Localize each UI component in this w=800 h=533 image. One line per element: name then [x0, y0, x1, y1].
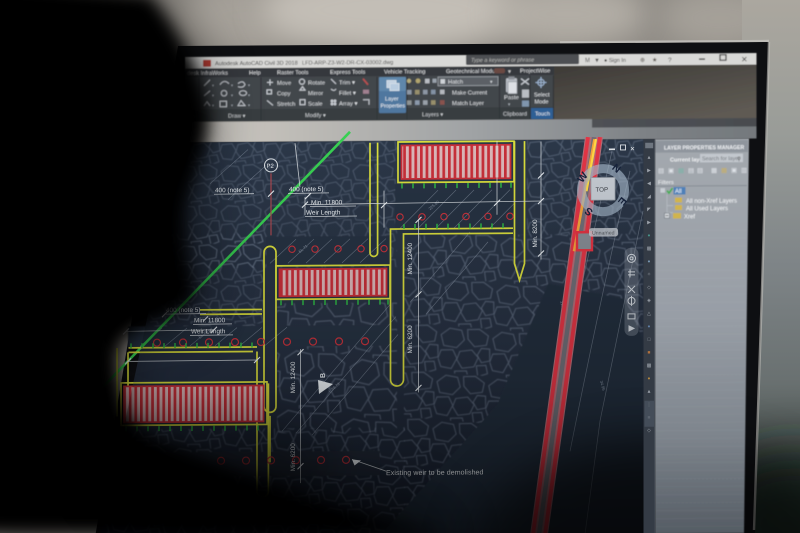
svg-text:Stretch: Stretch	[277, 102, 295, 108]
svg-text:All: All	[675, 189, 682, 195]
svg-text:LAYER PROPERTIES MANAGER: LAYER PROPERTIES MANAGER	[664, 145, 744, 152]
svg-text:All non-Xref Layers: All non-Xref Layers	[686, 199, 737, 205]
svg-text:Current laye: Current laye	[670, 157, 703, 163]
svg-text:▲: ▲	[647, 390, 652, 395]
svg-text:★: ★	[652, 57, 657, 64]
svg-text:▧: ▧	[658, 168, 664, 175]
svg-text:▾: ▾	[231, 103, 233, 108]
svg-text:◇: ◇	[647, 428, 651, 434]
svg-text:Fillet ▾: Fillet ▾	[339, 91, 356, 97]
svg-text:✧: ✧	[647, 272, 651, 278]
svg-text:▨: ▨	[697, 167, 703, 174]
svg-text:Scale: Scale	[308, 102, 323, 108]
svg-text:?: ?	[668, 57, 672, 64]
svg-text:Rotate: Rotate	[308, 81, 325, 87]
svg-text:Properties: Properties	[381, 103, 406, 109]
svg-text:□: □	[648, 338, 651, 343]
svg-text:Array ▾: Array ▾	[339, 101, 357, 107]
svg-text:LFD-ARP-Z3-W2-DR-CX-03002.dwg: LFD-ARP-Z3-W2-DR-CX-03002.dwg	[302, 60, 393, 67]
svg-text:Select: Select	[534, 92, 550, 98]
svg-text:Geotechnical Module: Geotechnical Module	[446, 69, 499, 75]
svg-text:Layers ▾: Layers ▾	[422, 112, 443, 118]
svg-text:Clipboard: Clipboard	[503, 112, 527, 118]
svg-text:All Used Layers: All Used Layers	[686, 206, 728, 212]
svg-text:■: ■	[648, 351, 651, 356]
svg-text:Xref: Xref	[684, 214, 695, 220]
svg-text:▾: ▾	[212, 83, 214, 88]
svg-text:●: ●	[648, 377, 651, 382]
svg-text:Touch: Touch	[535, 111, 550, 117]
svg-text:Express Tools: Express Tools	[330, 70, 365, 76]
svg-text:▣: ▣	[668, 168, 674, 175]
svg-text:Draw ▾: Draw ▾	[228, 114, 246, 120]
svg-text:▾: ▾	[248, 83, 250, 88]
svg-text:●: ●	[648, 234, 651, 239]
svg-text:Help: Help	[249, 70, 261, 76]
svg-text:▩: ▩	[678, 168, 684, 175]
svg-text:▾: ▾	[212, 93, 214, 98]
svg-text:Raster Tools: Raster Tools	[277, 70, 309, 76]
svg-text:▲: ▲	[647, 156, 652, 161]
svg-text:▦: ▦	[711, 167, 717, 174]
svg-text:Hatch: Hatch	[448, 80, 463, 86]
svg-text:▾: ▾	[248, 93, 250, 98]
svg-text:◀: ◀	[647, 181, 651, 187]
svg-text:◇: ◇	[647, 285, 651, 291]
svg-text:▼: ▼	[594, 58, 600, 64]
svg-text:ProjectWise: ProjectWise	[520, 68, 550, 74]
svg-text:Search for layer: Search for layer	[702, 156, 740, 162]
svg-text:▤: ▤	[688, 167, 694, 174]
svg-text:● Sign In: ● Sign In	[604, 58, 626, 64]
svg-text:▼: ▼	[507, 69, 512, 75]
svg-text:Modify ▾: Modify ▾	[305, 113, 326, 119]
svg-text:◢: ◢	[647, 194, 651, 200]
svg-text:▾: ▾	[248, 103, 250, 108]
svg-text:▾: ▾	[212, 103, 214, 108]
svg-text:▩: ▩	[647, 363, 652, 369]
svg-text:△: △	[647, 311, 651, 317]
svg-text:●: ●	[648, 260, 651, 265]
svg-text:▥: ▥	[741, 167, 747, 174]
svg-text:▶: ▶	[647, 220, 651, 226]
svg-text:Mode: Mode	[535, 99, 549, 105]
svg-text:▶: ▶	[647, 168, 651, 174]
svg-text:▣: ▣	[731, 167, 737, 174]
svg-text:◈: ◈	[647, 298, 651, 304]
svg-text:●: ●	[648, 325, 651, 330]
svg-text:▾: ▾	[231, 83, 233, 88]
svg-text:▩: ▩	[647, 246, 652, 252]
svg-text:⊕: ⊕	[640, 58, 645, 64]
svg-text:Make Current: Make Current	[452, 90, 488, 96]
svg-text:Mirror: Mirror	[308, 91, 323, 97]
svg-text:Layer: Layer	[385, 96, 399, 102]
svg-text:Type a keyword or phrase: Type a keyword or phrase	[471, 58, 534, 64]
svg-text:Vehicle Tracking: Vehicle Tracking	[384, 69, 425, 75]
svg-text:Autodesk AutoCAD Civil 3D 2018: Autodesk AutoCAD Civil 3D 2018	[215, 61, 298, 68]
svg-text:Paste: Paste	[504, 95, 519, 101]
svg-text:M: M	[585, 58, 590, 64]
svg-text:▾: ▾	[231, 93, 233, 98]
svg-text:⚲: ⚲	[737, 156, 741, 163]
svg-text:◤: ◤	[647, 207, 651, 213]
svg-text:Filters: Filters	[658, 180, 674, 186]
svg-text:Trim ▾: Trim ▾	[339, 80, 355, 86]
svg-text:Copy: Copy	[277, 91, 291, 97]
svg-text:✕: ✕	[741, 55, 748, 64]
svg-text:Move: Move	[277, 81, 291, 87]
svg-text:▩: ▩	[721, 167, 727, 174]
svg-text:Match Layer: Match Layer	[452, 101, 484, 107]
